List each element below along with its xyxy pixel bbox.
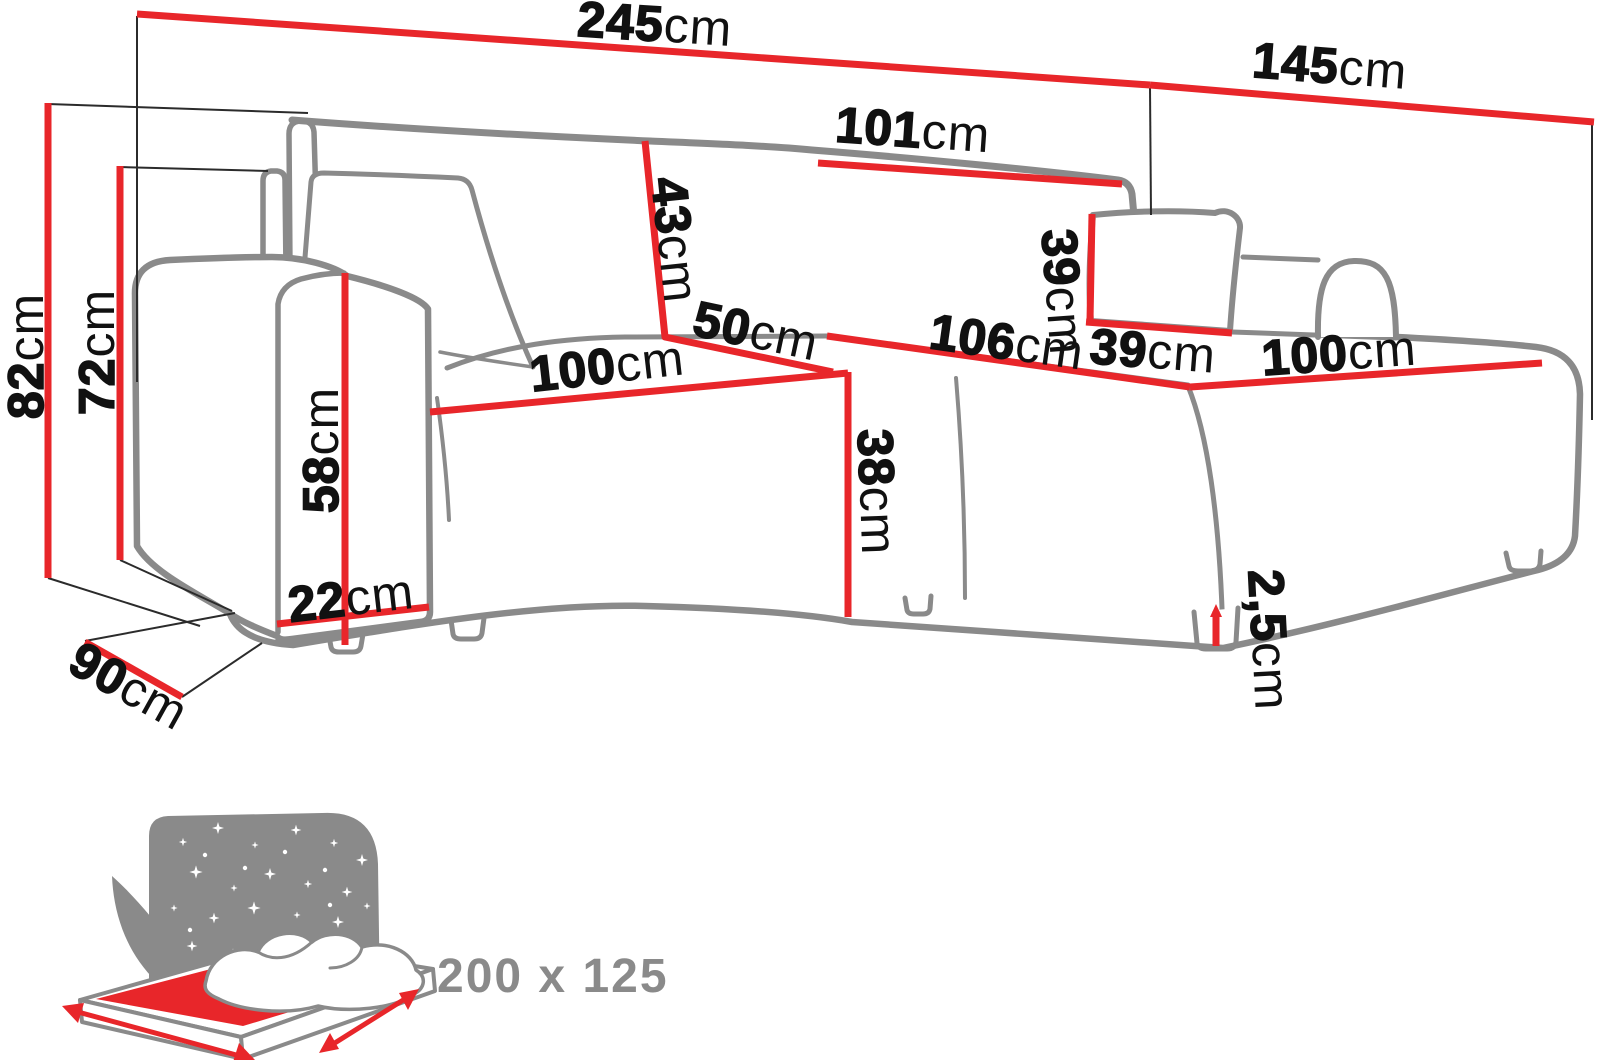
sofa-legs (329, 551, 1541, 652)
sleep-size-label: 200 x 125 (437, 950, 669, 1003)
dim-label-90: 90cm (60, 631, 198, 741)
dim-label-39-vert: 39cm (1031, 227, 1096, 357)
dim-label-58: 58cm (293, 387, 349, 513)
dim-label-72: 72cm (69, 289, 125, 415)
corner-module-seam (956, 378, 965, 598)
chaise-seam (1188, 386, 1223, 640)
diagram-canvas: 245cm 145cm 101cm 43cm 50cm 100cm 38cm 1… (0, 0, 1600, 1060)
corner-pillow (1090, 211, 1241, 331)
dim-label-101: 101cm (834, 97, 993, 164)
dim-label-82: 82cm (0, 293, 54, 419)
dim-label-50: 50cm (688, 290, 823, 371)
sofa-dimension-diagram: 245cm 145cm 101cm 43cm 50cm 100cm 38cm 1… (0, 0, 1600, 1060)
dim-label-100-right: 100cm (1260, 320, 1419, 387)
dim-label-145: 145cm (1250, 32, 1409, 100)
dim-label-38: 38cm (847, 428, 907, 556)
dim-label-43: 43cm (641, 174, 710, 305)
dim-label-2-5: 2,5cm (1237, 568, 1300, 712)
sleep-function-icon: 200 x 125 (62, 813, 669, 1060)
dim-label-39-horiz: 39cm (1088, 318, 1218, 384)
